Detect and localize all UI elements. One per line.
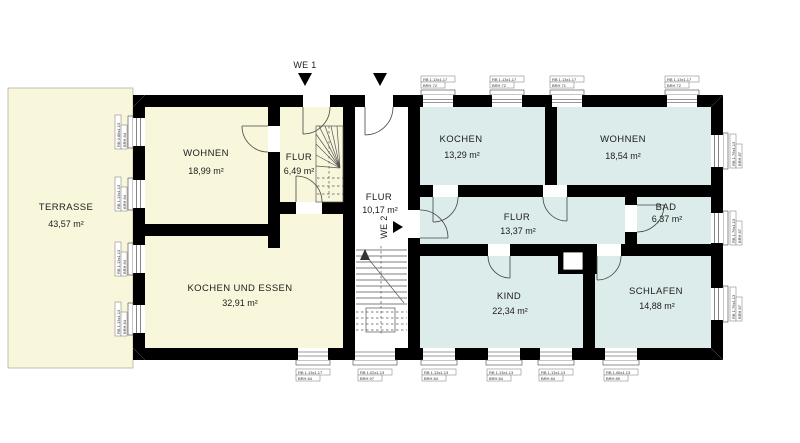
window-east-3 bbox=[711, 286, 728, 322]
svg-text:RB 1.02x1.13: RB 1.02x1.13 bbox=[360, 370, 385, 375]
we1-entrance-arrow-icon bbox=[298, 73, 312, 86]
wall-wohnen1-kueche bbox=[145, 224, 280, 236]
window-west-4 bbox=[128, 303, 145, 335]
room-area-label: 13,29 m² bbox=[444, 150, 480, 160]
window-label: RB 1.13x1.13 BRH 84 bbox=[539, 369, 573, 381]
window-west-2 bbox=[128, 178, 145, 210]
window-label-line1: RB 1.13x1.17 bbox=[423, 77, 448, 82]
window-south-5 bbox=[538, 348, 574, 365]
window-west-3 bbox=[128, 243, 145, 275]
wall-hall-west bbox=[343, 107, 355, 348]
svg-text:RB 1.13x1.17: RB 1.13x1.17 bbox=[492, 77, 517, 82]
room-area-label: 13,37 m² bbox=[500, 226, 536, 236]
svg-text:BRH 84: BRH 84 bbox=[122, 132, 127, 147]
window-east-2 bbox=[711, 211, 728, 245]
svg-text:RB 1.13x1.13: RB 1.13x1.13 bbox=[489, 370, 514, 375]
floor-plan-drawing: TERRASSE 43,57 m² bbox=[0, 0, 800, 443]
window-label: RB 1.13x1.17 BRH 72 bbox=[665, 76, 699, 88]
svg-text:BRH 84: BRH 84 bbox=[122, 194, 127, 209]
room-name-label: FLUR bbox=[366, 192, 392, 203]
window-north-1 bbox=[421, 90, 455, 107]
room-name-label: WOHNEN bbox=[183, 148, 229, 159]
window-south-6 bbox=[603, 348, 639, 365]
door-gap-kochen2 bbox=[433, 185, 458, 197]
window-label: RB 1.13x1.13 BRH 84 bbox=[422, 369, 456, 381]
room-area-label: 18,99 m² bbox=[188, 166, 224, 176]
window-south-1 bbox=[296, 348, 330, 365]
svg-text:RB 1.13x1.17: RB 1.13x1.17 bbox=[667, 77, 692, 82]
svg-text:BRH 87: BRH 87 bbox=[737, 228, 742, 243]
svg-text:BRH 71: BRH 71 bbox=[552, 83, 567, 88]
room-area-label: 10,17 m² bbox=[362, 205, 398, 215]
svg-text:RB 1.13x1.13: RB 1.13x1.13 bbox=[116, 249, 121, 274]
hall-entrance-arrow-icon bbox=[373, 73, 387, 86]
svg-text:BRH 84: BRH 84 bbox=[122, 259, 127, 274]
window-label: RB 1.13x1.17 BRH 84 bbox=[296, 369, 330, 381]
window-south-2 bbox=[353, 348, 397, 365]
window-east-1 bbox=[711, 133, 728, 169]
door-gap-kueche1 bbox=[296, 202, 322, 214]
room-area-label: 43,57 m² bbox=[48, 219, 84, 229]
room-area-label: 22,34 m² bbox=[492, 306, 528, 316]
window-west-1 bbox=[128, 116, 145, 148]
window-label: RB 1.13x1.17 BRH 71 bbox=[550, 76, 584, 88]
we1-label: WE 1 bbox=[293, 60, 316, 70]
svg-text:BRH 97: BRH 97 bbox=[360, 376, 375, 381]
window-north-4 bbox=[665, 90, 699, 107]
room-name-label: FLUR bbox=[286, 152, 312, 163]
we2-label: WE 2 bbox=[379, 215, 389, 238]
room-name-label: KIND bbox=[497, 291, 521, 302]
room-name-label: WOHNEN bbox=[600, 134, 646, 145]
window-label: RB 1.06x1.13 BRH 89 bbox=[604, 369, 638, 381]
room-name-label: FLUR bbox=[504, 212, 530, 223]
room-area-label: 6,49 m² bbox=[284, 166, 315, 176]
svg-text:BRH 89: BRH 89 bbox=[606, 376, 621, 381]
svg-text:RB 0.88x1.13: RB 0.88x1.13 bbox=[116, 122, 121, 147]
room-name-label: SCHLAFEN bbox=[629, 286, 683, 297]
svg-text:RB 1.13x1.17: RB 1.13x1.17 bbox=[552, 77, 577, 82]
door-gap-wohnen2 bbox=[543, 185, 567, 197]
room-area-label: 18,54 m² bbox=[605, 151, 641, 161]
window-south-4 bbox=[486, 348, 522, 365]
room-name-label: KOCHEN UND ESSEN bbox=[187, 283, 292, 294]
door-gap-wohnen1 bbox=[268, 126, 280, 152]
svg-text:BRH 84: BRH 84 bbox=[298, 376, 313, 381]
svg-text:BRH 72: BRH 72 bbox=[667, 83, 682, 88]
window-south-3 bbox=[421, 348, 457, 365]
window-label: RB 1.13x1.17 BRH 72 bbox=[490, 76, 524, 88]
svg-text:BRH 84: BRH 84 bbox=[541, 376, 556, 381]
room-area-label: 14,88 m² bbox=[639, 301, 675, 311]
window-north-3 bbox=[550, 90, 584, 107]
door-gap-kind bbox=[488, 244, 510, 256]
svg-text:BRH 87: BRH 87 bbox=[737, 151, 742, 166]
window-label: RB 1.76x1.13 BRH 87 bbox=[730, 287, 742, 321]
door-gap-we2-entry bbox=[408, 210, 420, 238]
room-area-label: 32,91 m² bbox=[222, 298, 258, 308]
door-gap-schlafen bbox=[597, 244, 621, 256]
svg-text:BRH 72: BRH 72 bbox=[492, 83, 507, 88]
floor-plan-canvas: TERRASSE 43,57 m² bbox=[0, 0, 800, 443]
window-label: RB 1.13x1.13 BRH 84 bbox=[487, 369, 521, 381]
door-gap-bad bbox=[625, 205, 637, 232]
svg-text:RB 1.13x1.13: RB 1.13x1.13 bbox=[541, 370, 566, 375]
svg-text:RB 1.76x1.13: RB 1.76x1.13 bbox=[731, 141, 736, 166]
svg-text:RB 1.13x1.13: RB 1.13x1.13 bbox=[116, 184, 121, 209]
window-label: RB 1.13x1.17 BRH 72 bbox=[421, 76, 455, 88]
window-label: RB 1.76x1.13 BRH 87 bbox=[730, 134, 742, 168]
svg-text:BRH 87: BRH 87 bbox=[737, 304, 742, 319]
svg-text:RB 1.13x1.13: RB 1.13x1.13 bbox=[116, 309, 121, 334]
room-name-label: TERRASSE bbox=[39, 202, 93, 213]
svg-text:RB 1.76x1.13: RB 1.76x1.13 bbox=[731, 218, 736, 243]
wall-kochen2-wohnen2 bbox=[545, 107, 557, 185]
svg-text:RB 1.06x1.13: RB 1.06x1.13 bbox=[606, 370, 631, 375]
chimney-niche bbox=[563, 252, 583, 270]
svg-text:BRH 84: BRH 84 bbox=[122, 319, 127, 334]
room-name-label: KOCHEN bbox=[439, 134, 482, 145]
svg-text:RB 1.13x1.13: RB 1.13x1.13 bbox=[424, 370, 449, 375]
svg-text:BRH 84: BRH 84 bbox=[489, 376, 504, 381]
svg-text:BRH 84: BRH 84 bbox=[424, 376, 439, 381]
svg-text:RB 1.76x1.13: RB 1.76x1.13 bbox=[731, 294, 736, 319]
window-label: RB 1.02x1.13 BRH 97 bbox=[358, 369, 392, 381]
door-gap-hall-entry bbox=[365, 95, 393, 107]
window-label-line2: BRH 72 bbox=[423, 83, 438, 88]
svg-text:RB 1.13x1.17: RB 1.13x1.17 bbox=[298, 370, 323, 375]
window-north-2 bbox=[490, 90, 524, 107]
room-area-label: 6,37 m² bbox=[652, 214, 683, 224]
window-label: RB 1.76x1.13 BRH 87 bbox=[730, 211, 742, 245]
terrace: TERRASSE 43,57 m² bbox=[8, 88, 133, 368]
room-name-label: BAD bbox=[656, 202, 677, 213]
door-gap-we1-entry bbox=[303, 95, 330, 107]
